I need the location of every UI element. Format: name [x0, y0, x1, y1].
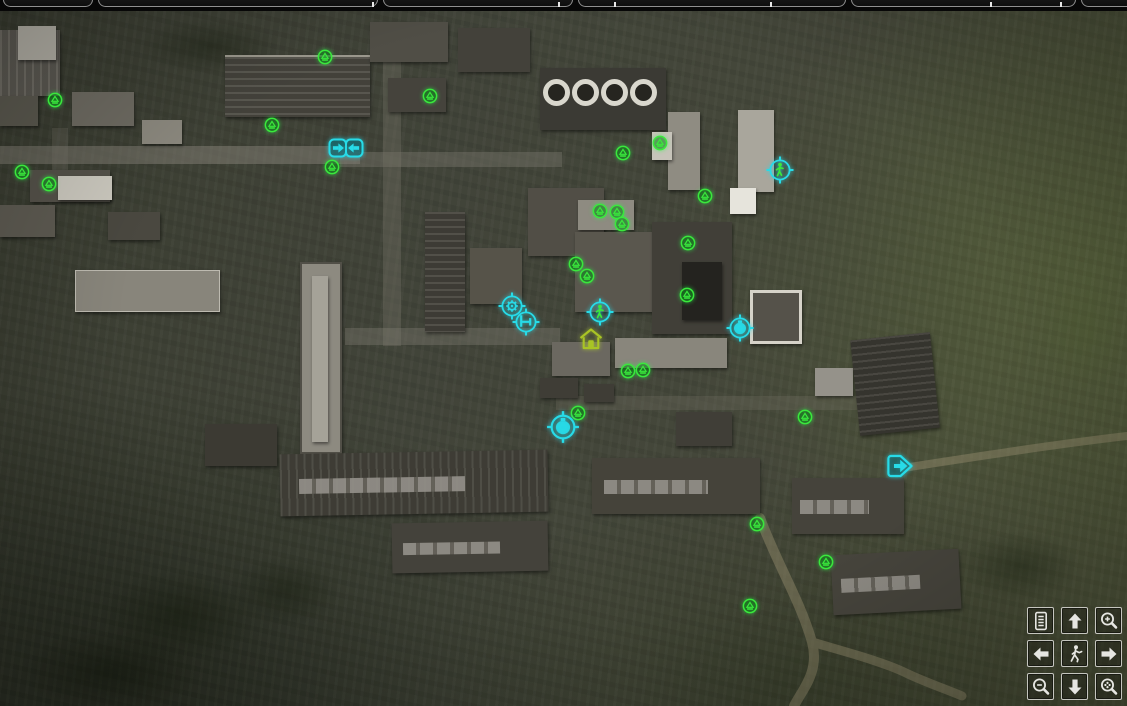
tab-strip [0, 0, 1127, 11]
stash-marker[interactable] [679, 287, 695, 303]
arrow-left-icon [1029, 642, 1053, 666]
tab-tick [372, 2, 374, 7]
map-control-pad [1027, 607, 1122, 700]
stash-marker[interactable] [742, 598, 758, 614]
pda-tab[interactable] [383, 0, 573, 7]
pda-tab[interactable] [1081, 0, 1127, 7]
stash-marker[interactable] [264, 117, 280, 133]
stash-marker[interactable] [797, 409, 813, 425]
tab-tick [990, 2, 992, 7]
pda-tab[interactable] [851, 0, 1076, 7]
stash-marker[interactable] [422, 88, 438, 104]
markers-layer [0, 11, 1127, 706]
stash-marker[interactable] [749, 516, 765, 532]
magnifier-plus-icon [1097, 609, 1121, 633]
zoom-out-button[interactable] [1027, 673, 1054, 700]
stash-marker[interactable] [652, 135, 668, 151]
npc-marker[interactable] [765, 155, 795, 185]
zoom-reset-button[interactable] [1095, 673, 1122, 700]
flask-marker[interactable] [725, 313, 755, 343]
arrow-down-icon [1063, 675, 1087, 699]
tab-tick [614, 2, 616, 7]
stash-marker[interactable] [615, 145, 631, 161]
arrow-right-icon [1097, 642, 1121, 666]
zoom-in-button[interactable] [1095, 607, 1122, 634]
tab-tick [1060, 2, 1062, 7]
stash-marker[interactable] [697, 188, 713, 204]
stash-marker[interactable] [47, 92, 63, 108]
stash-marker[interactable] [620, 363, 636, 379]
pan-right-button[interactable] [1095, 640, 1122, 667]
stash-marker[interactable] [317, 49, 333, 65]
pan-up-button[interactable] [1061, 607, 1088, 634]
pan-down-button[interactable] [1061, 673, 1088, 700]
document-icon [1029, 609, 1053, 633]
pda-tab[interactable] [98, 0, 378, 7]
stash-marker[interactable] [614, 216, 630, 232]
satellite-map[interactable] [0, 11, 1127, 706]
stash-marker[interactable] [592, 203, 608, 219]
house-marker[interactable] [578, 327, 605, 352]
pan-left-button[interactable] [1027, 640, 1054, 667]
stash-marker[interactable] [14, 164, 30, 180]
notes-button[interactable] [1027, 607, 1054, 634]
magnifier-target-icon [1097, 675, 1121, 699]
stash-marker[interactable] [680, 235, 696, 251]
walker-icon [1063, 642, 1087, 666]
flask-large-marker[interactable] [545, 409, 580, 444]
transition-east-marker[interactable] [886, 453, 916, 479]
stash-marker[interactable] [635, 362, 651, 378]
stash-marker[interactable] [579, 268, 595, 284]
tab-tick [558, 2, 560, 7]
arrow-up-icon [1063, 609, 1087, 633]
stash-marker[interactable] [818, 554, 834, 570]
rest-marker[interactable] [511, 307, 541, 337]
pda-tab[interactable] [578, 0, 846, 7]
magnifier-minus-icon [1029, 675, 1053, 699]
tab-tick [770, 2, 772, 7]
npc-marker[interactable] [585, 297, 615, 327]
pda-map-screen [0, 0, 1127, 706]
stash-marker[interactable] [41, 176, 57, 192]
pda-tab[interactable] [3, 0, 93, 7]
center-on-player-button[interactable] [1061, 640, 1088, 667]
transition-pair-marker[interactable] [328, 136, 365, 160]
stash-marker[interactable] [324, 159, 340, 175]
